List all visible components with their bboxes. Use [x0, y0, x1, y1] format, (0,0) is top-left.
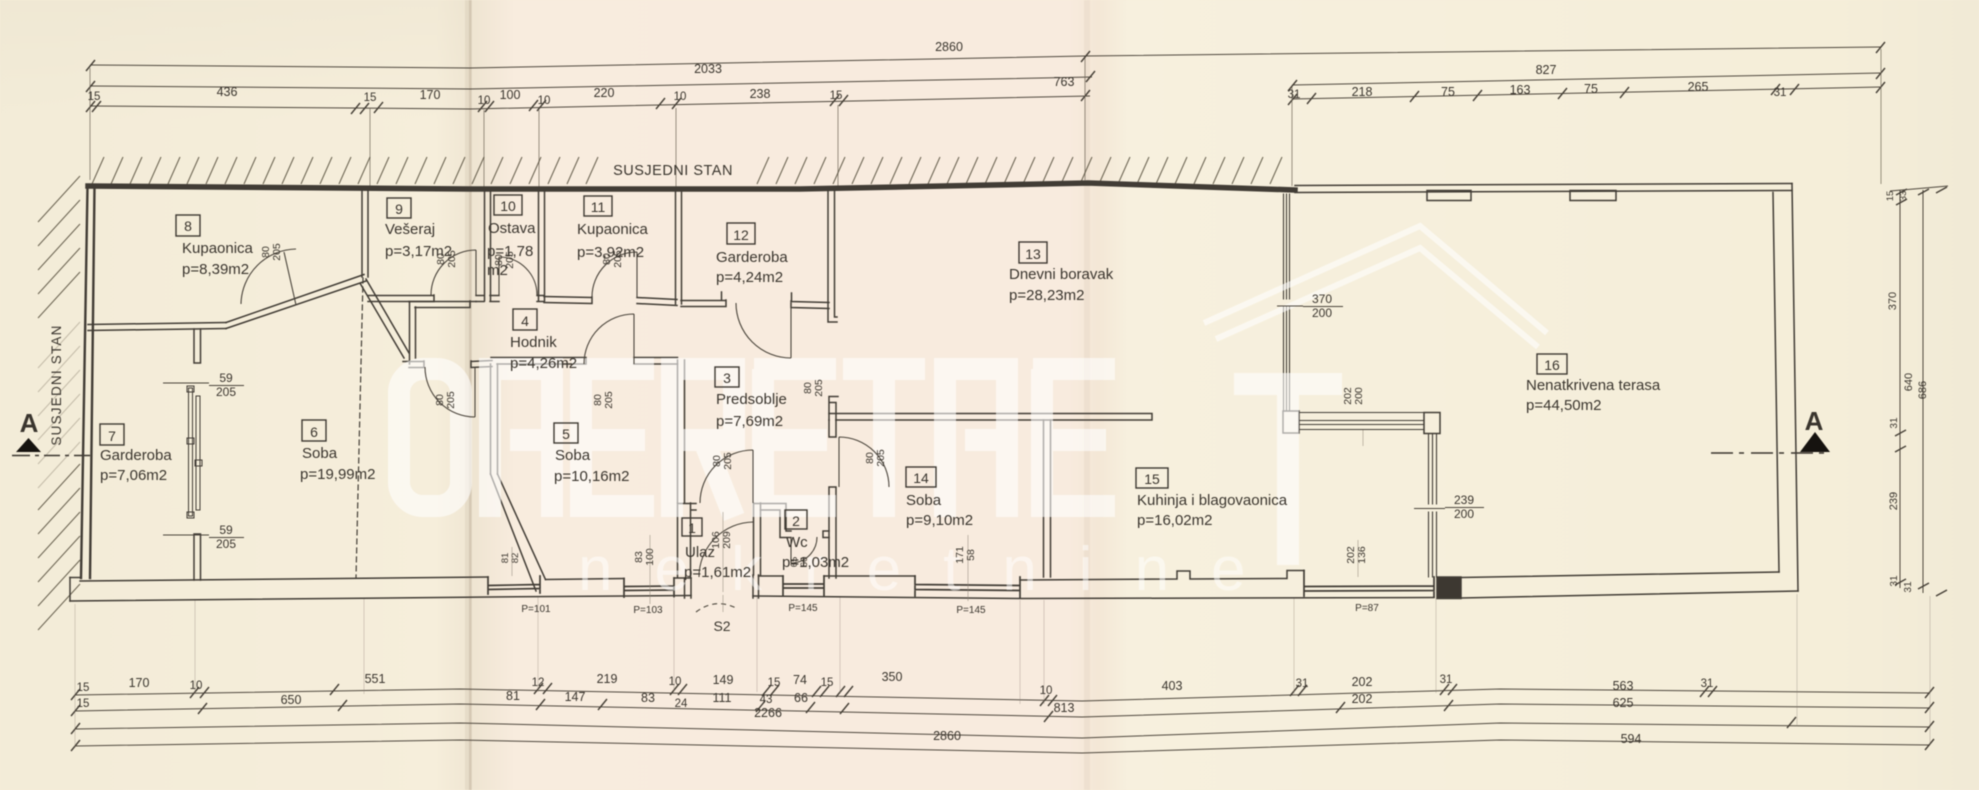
svg-text:10: 10 [190, 680, 203, 692]
svg-text:2033: 2033 [694, 62, 722, 76]
svg-text:p=7,06m2: p=7,06m2 [100, 467, 167, 484]
svg-text:p=1,61m2: p=1,61m2 [684, 564, 751, 581]
svg-text:10: 10 [1040, 685, 1053, 697]
svg-text:75: 75 [1441, 85, 1455, 99]
svg-text:403: 403 [1162, 679, 1183, 693]
svg-text:Dnevni boravak: Dnevni boravak [1009, 266, 1114, 283]
svg-text:33: 33 [1898, 191, 1909, 202]
svg-text:827: 827 [1536, 63, 1557, 77]
svg-text:Vešeraj: Vešeraj [385, 221, 435, 238]
svg-text:Garderoba: Garderoba [100, 447, 172, 464]
svg-text:239: 239 [1888, 492, 1900, 510]
svg-text:202: 202 [1352, 692, 1373, 706]
svg-text:163: 163 [1510, 83, 1531, 97]
svg-text:24: 24 [675, 698, 688, 710]
svg-text:370: 370 [1312, 292, 1332, 306]
svg-text:31: 31 [1889, 575, 1900, 587]
svg-text:640: 640 [1903, 373, 1915, 391]
svg-text:10: 10 [478, 95, 491, 107]
svg-text:31: 31 [1296, 678, 1309, 690]
svg-text:P=145: P=145 [788, 603, 818, 614]
svg-text:10: 10 [669, 676, 682, 688]
svg-text:P=145: P=145 [956, 605, 986, 616]
svg-text:10: 10 [674, 91, 687, 103]
svg-text:Garderoba: Garderoba [716, 249, 788, 266]
svg-text:Kuhinja i blagovaonica: Kuhinja i blagovaonica [1137, 492, 1288, 509]
svg-text:p=44,50m2: p=44,50m2 [1526, 397, 1601, 414]
svg-text:147: 147 [565, 690, 586, 704]
svg-text:58: 58 [965, 549, 977, 561]
svg-text:Soba: Soba [302, 445, 338, 462]
svg-text:81: 81 [506, 689, 520, 703]
svg-text:6: 6 [310, 424, 318, 440]
svg-text:763: 763 [1054, 75, 1075, 89]
svg-text:200: 200 [1353, 387, 1365, 405]
svg-text:239: 239 [1454, 493, 1474, 507]
svg-text:p=9,10m2: p=9,10m2 [906, 512, 973, 529]
svg-text:59: 59 [219, 523, 233, 537]
svg-text:2860: 2860 [935, 40, 963, 54]
svg-text:15: 15 [77, 698, 90, 710]
svg-text:p=19,99m2: p=19,99m2 [300, 466, 375, 483]
svg-text:p=1,03m2: p=1,03m2 [782, 554, 849, 571]
svg-text:Soba: Soba [555, 447, 591, 464]
svg-text:31: 31 [1774, 87, 1787, 99]
svg-text:218: 218 [1352, 85, 1373, 99]
svg-text:1: 1 [688, 520, 696, 536]
svg-text:9: 9 [395, 201, 403, 217]
svg-text:625: 625 [1613, 696, 1634, 710]
svg-text:59: 59 [219, 371, 233, 385]
svg-text:31: 31 [1889, 417, 1900, 429]
svg-text:p=3,17m2: p=3,17m2 [385, 243, 452, 260]
svg-text:7: 7 [108, 428, 116, 444]
svg-text:31: 31 [1903, 581, 1914, 593]
svg-text:Soba: Soba [906, 492, 942, 509]
svg-text:170: 170 [129, 676, 150, 690]
svg-text:202: 202 [1352, 675, 1373, 689]
svg-text:p=4,24m2: p=4,24m2 [716, 269, 783, 286]
svg-text:220: 220 [594, 86, 615, 100]
svg-text:2266: 2266 [754, 706, 782, 720]
svg-text:Ulaz: Ulaz [685, 544, 715, 561]
svg-text:12: 12 [532, 677, 545, 689]
svg-text:370: 370 [1887, 292, 1899, 310]
svg-text:350: 350 [882, 670, 903, 684]
svg-text:Nenatkrivena terasa: Nenatkrivena terasa [1526, 377, 1661, 394]
svg-text:11: 11 [591, 199, 606, 215]
svg-text:p=10,16m2: p=10,16m2 [554, 468, 629, 485]
svg-text:205: 205 [445, 391, 457, 409]
svg-text:15: 15 [364, 92, 377, 104]
svg-text:265: 265 [1688, 80, 1709, 94]
svg-text:Kupaonica: Kupaonica [577, 221, 649, 238]
svg-text:74: 74 [793, 673, 807, 687]
svg-text:2860: 2860 [933, 729, 961, 743]
svg-text:200: 200 [1454, 507, 1474, 521]
svg-text:p=1,78: p=1,78 [487, 243, 533, 260]
svg-text:205: 205 [875, 449, 887, 467]
svg-text:10: 10 [538, 95, 551, 107]
svg-text:100: 100 [500, 88, 521, 102]
svg-text:P=101: P=101 [521, 604, 551, 615]
svg-text:594: 594 [1621, 732, 1642, 746]
svg-text:15: 15 [768, 677, 781, 689]
svg-text:A: A [20, 408, 39, 438]
svg-text:650: 650 [281, 693, 302, 707]
svg-text:14: 14 [913, 470, 929, 486]
svg-text:SUSJEDNI STAN: SUSJEDNI STAN [49, 324, 64, 445]
svg-text:31: 31 [1440, 674, 1453, 686]
svg-text:12: 12 [733, 227, 749, 243]
svg-text:170: 170 [420, 88, 441, 102]
svg-text:Wc: Wc [786, 534, 808, 551]
svg-text:S2: S2 [713, 618, 730, 634]
svg-text:16: 16 [1544, 357, 1560, 373]
svg-text:15: 15 [821, 677, 834, 689]
svg-text:75: 75 [1584, 82, 1598, 96]
svg-text:205: 205 [216, 537, 236, 551]
svg-text:43: 43 [760, 694, 773, 706]
svg-text:2: 2 [792, 513, 800, 529]
svg-text:10: 10 [500, 198, 516, 214]
svg-text:31: 31 [1288, 89, 1301, 101]
svg-text:p=3,92m2: p=3,92m2 [577, 244, 644, 261]
svg-text:15: 15 [1144, 471, 1160, 487]
svg-text:686: 686 [1917, 381, 1929, 399]
svg-text:200: 200 [1312, 306, 1332, 320]
svg-text:Hodnik: Hodnik [510, 334, 557, 351]
svg-text:p=16,02m2: p=16,02m2 [1137, 512, 1212, 529]
svg-text:p=28,23m2: p=28,23m2 [1009, 287, 1084, 304]
svg-text:P=103: P=103 [633, 605, 663, 616]
svg-text:p=8,39m2: p=8,39m2 [182, 261, 249, 278]
svg-text:15: 15 [88, 91, 101, 103]
svg-text:m2: m2 [487, 262, 508, 279]
svg-text:A: A [1805, 406, 1824, 436]
svg-text:31: 31 [1701, 678, 1714, 690]
svg-text:205: 205 [722, 452, 734, 470]
svg-text:5: 5 [562, 426, 570, 442]
svg-text:Ostava: Ostava [488, 220, 536, 237]
svg-text:205: 205 [271, 243, 283, 261]
svg-text:551: 551 [365, 672, 386, 686]
svg-text:8: 8 [184, 218, 192, 234]
svg-text:15: 15 [1885, 191, 1896, 202]
svg-text:P=87: P=87 [1355, 603, 1379, 614]
svg-text:205: 205 [216, 385, 236, 399]
svg-text:66: 66 [794, 691, 808, 705]
svg-text:813: 813 [1054, 701, 1075, 715]
svg-text:Kupaonica: Kupaonica [182, 240, 254, 257]
svg-text:436: 436 [217, 85, 238, 99]
svg-text:p=7,69m2: p=7,69m2 [716, 413, 783, 430]
svg-text:149: 149 [713, 673, 734, 687]
svg-text:Predsoblje: Predsoblje [716, 391, 787, 408]
svg-text:563: 563 [1613, 679, 1634, 693]
svg-text:13: 13 [1025, 246, 1041, 262]
svg-text:4: 4 [521, 313, 529, 329]
svg-text:238: 238 [750, 87, 771, 101]
svg-text:83: 83 [641, 691, 655, 705]
svg-text:111: 111 [712, 691, 731, 705]
svg-text:205: 205 [813, 379, 825, 397]
svg-text:205: 205 [603, 391, 615, 409]
svg-text:SUSJEDNI STAN: SUSJEDNI STAN [613, 163, 733, 179]
svg-text:15: 15 [77, 682, 90, 694]
svg-text:219: 219 [597, 672, 618, 686]
svg-text:15: 15 [830, 90, 843, 102]
svg-text:p=4,26m2: p=4,26m2 [510, 355, 577, 372]
svg-text:3: 3 [723, 370, 731, 386]
